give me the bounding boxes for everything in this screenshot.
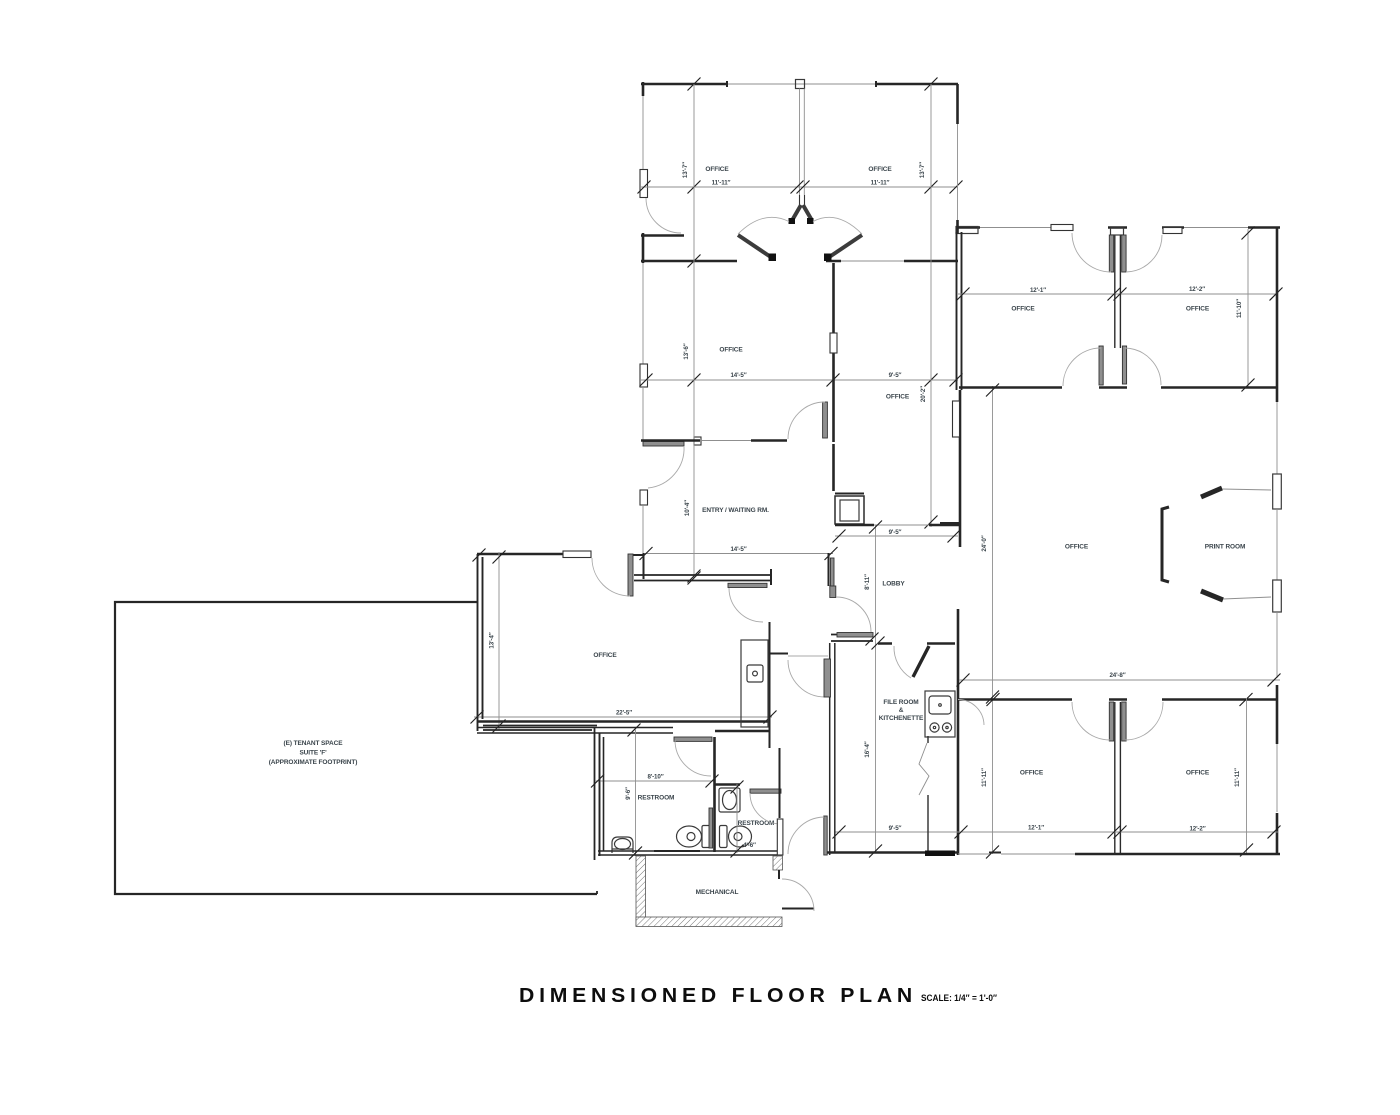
svg-text:13'-7″: 13'-7″ <box>919 162 926 178</box>
svg-text:OFFICE: OFFICE <box>1186 770 1210 777</box>
svg-text:12'-2″: 12'-2″ <box>1189 286 1205 293</box>
svg-text:13'-4″: 13'-4″ <box>489 632 496 648</box>
svg-text:9'-5″: 9'-5″ <box>889 825 902 832</box>
svg-text:20'-2″: 20'-2″ <box>920 386 927 402</box>
svg-text:24'-0″: 24'-0″ <box>981 535 988 551</box>
svg-text:12'-2″: 12'-2″ <box>1189 826 1205 833</box>
svg-text:12'-1″: 12'-1″ <box>1028 825 1044 832</box>
svg-text:MECHANICAL: MECHANICAL <box>696 889 739 896</box>
svg-text:14'-5″: 14'-5″ <box>730 372 746 379</box>
svg-text:SUITE 'F': SUITE 'F' <box>299 750 327 757</box>
svg-text:OFFICE: OFFICE <box>1065 544 1089 551</box>
svg-text:&: & <box>899 707 904 714</box>
svg-text:OFFICE: OFFICE <box>868 166 892 173</box>
svg-text:11'-11″: 11'-11″ <box>981 768 988 787</box>
svg-text:11'-10″: 11'-10″ <box>1236 299 1243 318</box>
svg-text:SCALE: 1/4″ = 1'-0″: SCALE: 1/4″ = 1'-0″ <box>921 993 997 1004</box>
svg-text:13'-6″: 13'-6″ <box>683 343 690 359</box>
svg-text:8'-10″: 8'-10″ <box>647 774 663 781</box>
svg-text:PRINT ROOM: PRINT ROOM <box>1205 544 1246 551</box>
svg-text:9'-5″: 9'-5″ <box>889 372 902 379</box>
svg-text:12'-1″: 12'-1″ <box>1030 287 1046 294</box>
svg-text:9'-6″: 9'-6″ <box>625 787 632 800</box>
svg-text:10'-4″: 10'-4″ <box>684 500 691 516</box>
svg-text:16'-4″: 16'-4″ <box>864 741 871 757</box>
svg-text:ENTRY / WAITING RM.: ENTRY / WAITING RM. <box>702 507 769 514</box>
svg-text:OFFICE: OFFICE <box>886 394 910 401</box>
svg-text:OFFICE: OFFICE <box>1020 770 1044 777</box>
svg-text:8'-11″: 8'-11″ <box>864 574 871 590</box>
svg-text:9'-5″: 9'-5″ <box>889 529 902 536</box>
svg-text:LOBBY: LOBBY <box>882 581 905 588</box>
svg-text:24'-8″: 24'-8″ <box>1109 672 1125 679</box>
svg-text:OFFICE: OFFICE <box>705 166 729 173</box>
svg-text:14'-5″: 14'-5″ <box>730 546 746 553</box>
svg-text:DIMENSIONED FLOOR PLAN: DIMENSIONED FLOOR PLAN <box>519 984 917 1007</box>
svg-text:KITCHENETTE: KITCHENETTE <box>879 715 924 722</box>
svg-text:OFFICE: OFFICE <box>719 347 743 354</box>
svg-text:OFFICE: OFFICE <box>593 652 617 659</box>
svg-text:OFFICE: OFFICE <box>1011 306 1035 313</box>
svg-text:(APPROXIMATE FOOTPRINT): (APPROXIMATE FOOTPRINT) <box>269 759 358 766</box>
svg-text:OFFICE: OFFICE <box>1186 306 1210 313</box>
svg-text:FILE ROOM: FILE ROOM <box>883 699 918 706</box>
svg-text:RESTROOM: RESTROOM <box>638 795 675 802</box>
svg-text:11'-11″: 11'-11″ <box>1234 768 1241 787</box>
svg-text:11'-11″: 11'-11″ <box>712 180 731 187</box>
svg-text:11'-11″: 11'-11″ <box>871 180 890 187</box>
svg-text:13'-7″: 13'-7″ <box>682 162 689 178</box>
svg-text:(E) TENANT SPACE: (E) TENANT SPACE <box>284 740 344 747</box>
svg-text:22'-5″: 22'-5″ <box>616 710 632 717</box>
